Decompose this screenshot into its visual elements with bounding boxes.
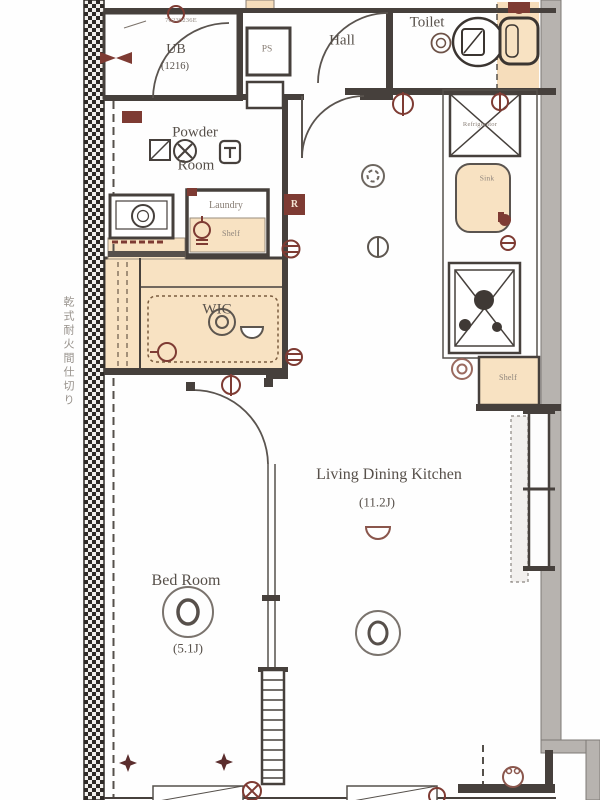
kitchen-shelf-label: Shelf [499, 374, 517, 382]
bedroom-door-arc [193, 390, 268, 464]
powder-room-label-2: Room [178, 159, 215, 174]
pipe-space [247, 28, 290, 108]
kitchen-column [443, 90, 539, 405]
ps-label: PS [262, 45, 273, 55]
ldk-door-arc [302, 96, 364, 158]
toilet-label: Toilet [410, 16, 445, 31]
partition-note-label: 乾式耐火間仕切り [60, 296, 76, 408]
refrigerator-label: Refrigerator [463, 122, 497, 129]
powder-room-label-1: Powder [172, 126, 218, 141]
bedroom-ceiling-light [163, 587, 213, 637]
below-wic-light-symbol [222, 374, 240, 396]
counter-outlet-symbol [501, 236, 515, 250]
room-laundry [187, 188, 268, 255]
ub-code-label: 70230236E [165, 18, 197, 25]
screen-strip [511, 416, 528, 582]
meter-symbol [503, 767, 523, 787]
panel-symbol [122, 111, 142, 123]
ldk-sensor-symbol [368, 237, 388, 257]
floor-marker-2 [215, 753, 233, 771]
ub-room-label: UB [166, 43, 185, 57]
balcony-window [511, 409, 555, 582]
bedroom-size-label: (5.1J) [173, 642, 203, 655]
fireproof-partition-wall [84, 0, 104, 800]
laundry-shelf-label: Shelf [222, 230, 240, 238]
wic-label: WIC [202, 303, 231, 318]
floorplan-canvas: 70230236E UB (1216) PS Hall Toilet Refri… [0, 0, 600, 800]
floor-marker-1 [119, 754, 137, 772]
hall-label: Hall [329, 34, 355, 49]
hall-light-symbol [393, 92, 413, 116]
bottom-window-2 [347, 786, 437, 800]
wall-outlet-symbol-2 [286, 349, 302, 365]
floorplan-drawing [0, 0, 600, 800]
room-hall [302, 13, 413, 158]
ldk-halfmoon-symbol [366, 527, 390, 539]
ldk-size-label: (11.2J) [359, 496, 395, 509]
toilet-fan-symbol [432, 34, 451, 53]
stove [449, 263, 520, 353]
ldk-label: Living Dining Kitchen [316, 467, 462, 483]
bottom-window-1 [153, 786, 243, 800]
sliding-door-pocket [258, 667, 288, 784]
ldk-fan-symbol [362, 165, 384, 187]
ub-size-label: (1216) [161, 62, 189, 73]
thermostat-symbol [220, 141, 240, 163]
laundry-label: Laundry [209, 201, 243, 211]
remote-controller-label: R [291, 200, 298, 210]
bedroom-symbols [163, 587, 213, 637]
sink-label: Sink [480, 174, 495, 182]
kitchen-light-symbol [452, 359, 472, 379]
ldk-ceiling-light [356, 611, 400, 655]
wic-area [104, 258, 285, 372]
bedroom-label: Bed Room [152, 573, 221, 589]
